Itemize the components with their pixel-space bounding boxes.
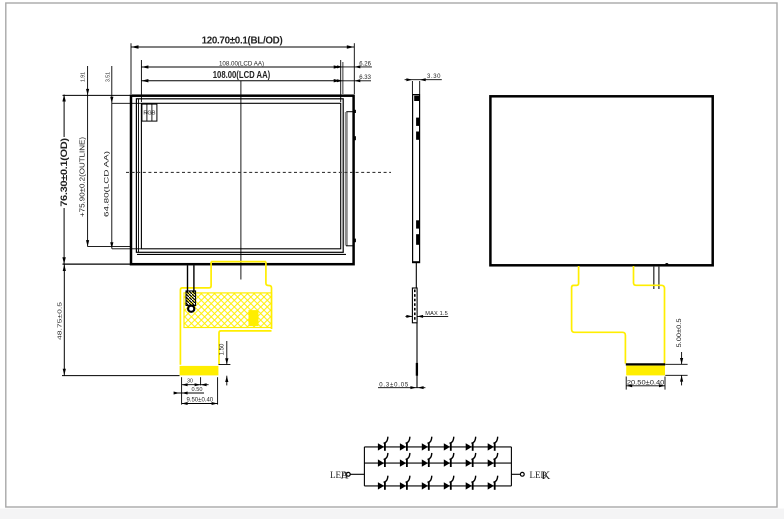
svg-text:0.50: 0.50 — [192, 387, 203, 393]
svg-text:108.00(LCD AA): 108.00(LCD AA) — [213, 70, 271, 81]
svg-text:30: 30 — [187, 379, 193, 385]
svg-text:3.30: 3.30 — [427, 74, 441, 80]
svg-text:6.26: 6.26 — [359, 61, 371, 67]
svg-text:K: K — [542, 468, 551, 482]
svg-text:1.91: 1.91 — [81, 72, 87, 82]
svg-text:RGB: RGB — [143, 111, 155, 117]
svg-text:6.33: 6.33 — [359, 75, 371, 81]
svg-text:76.30±0.1(OD): 76.30±0.1(OD) — [59, 138, 69, 207]
svg-text:0.3±0.05: 0.3±0.05 — [379, 382, 409, 388]
svg-text:108.00(LCD AA): 108.00(LCD AA) — [219, 61, 264, 68]
svg-text:120.70±0.1(BL/OD): 120.70±0.1(BL/OD) — [202, 36, 283, 47]
svg-text:+75.90±0.2(OUTLINE): +75.90±0.2(OUTLINE) — [80, 137, 87, 217]
svg-text:1.50: 1.50 — [219, 343, 225, 355]
svg-text:5.00±0.5: 5.00±0.5 — [677, 318, 683, 348]
svg-text:20.50±0.40: 20.50±0.40 — [627, 379, 665, 386]
svg-text:MAX 1.5: MAX 1.5 — [425, 311, 448, 317]
svg-text:A: A — [341, 470, 349, 482]
svg-text:3.51: 3.51 — [105, 72, 111, 82]
svg-text:64.80(LCD AA): 64.80(LCD AA) — [105, 151, 111, 217]
svg-text:9.50±0.40: 9.50±0.40 — [186, 398, 213, 404]
svg-text:48.75±0.5: 48.75±0.5 — [57, 302, 63, 340]
